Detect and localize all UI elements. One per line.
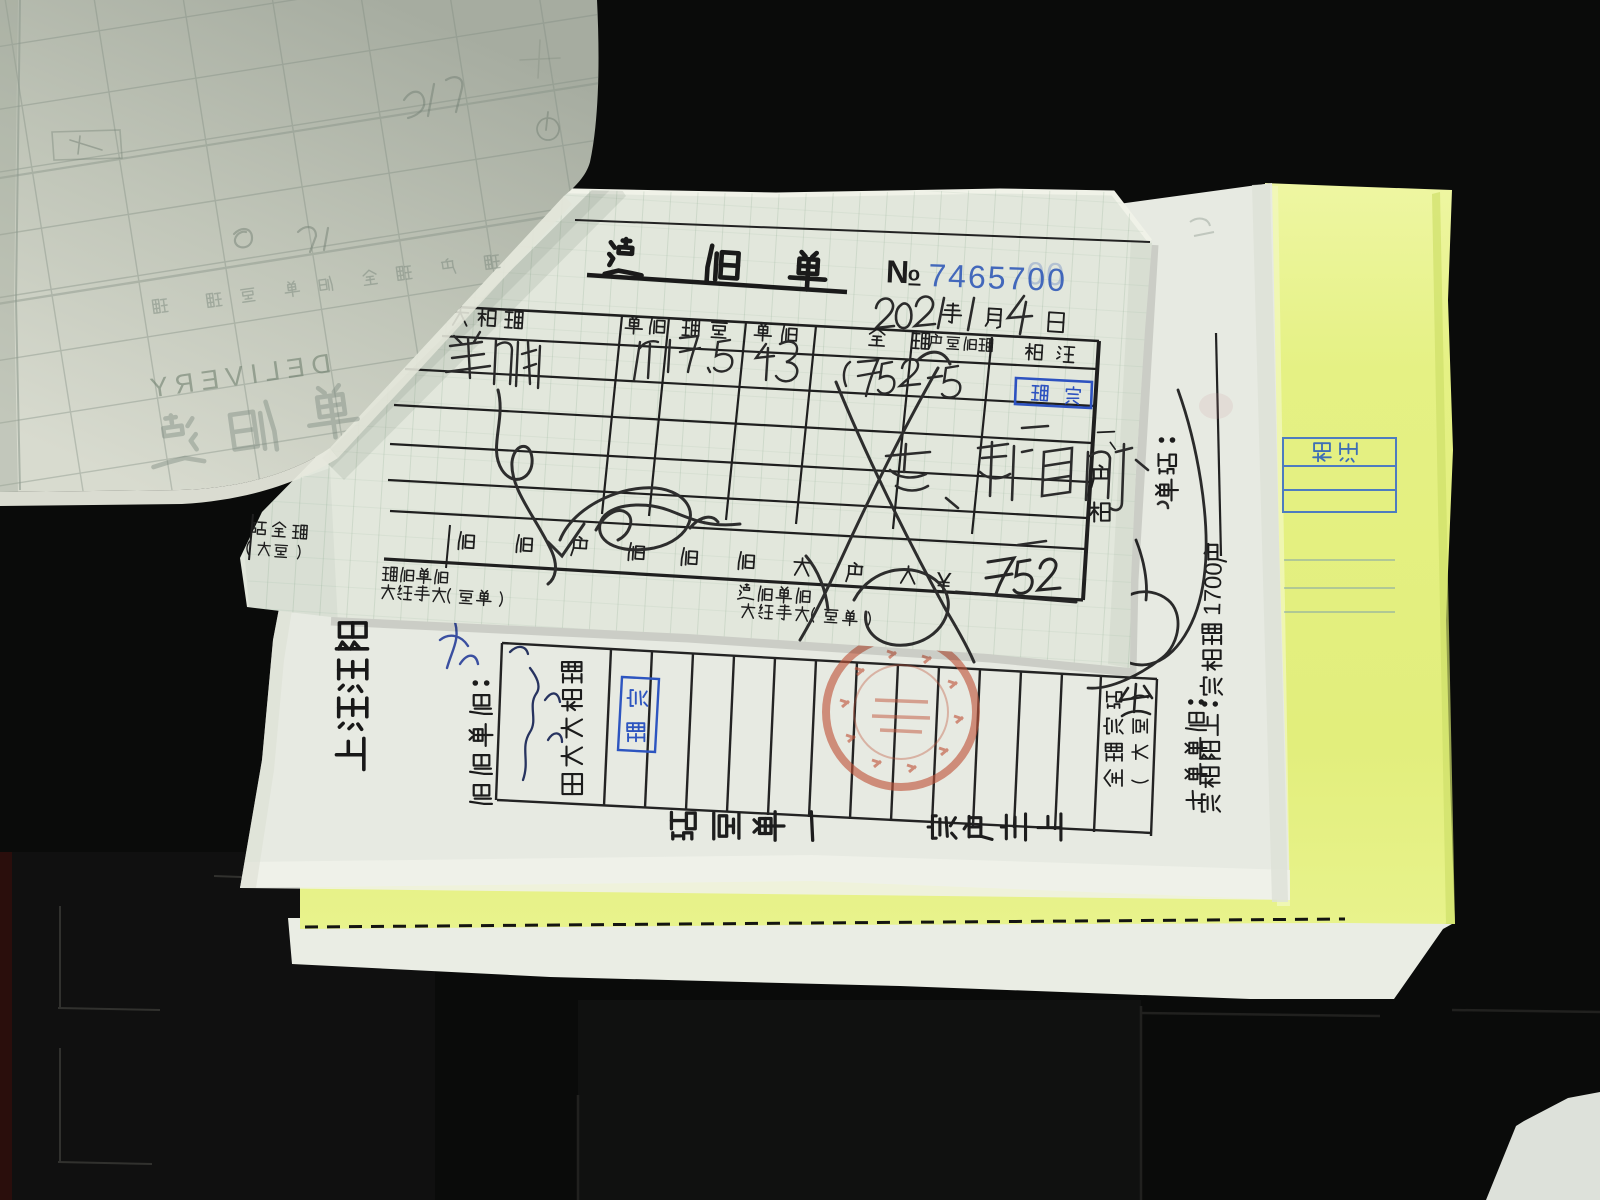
svg-text:N: N: [885, 253, 910, 290]
svg-text:o: o: [907, 263, 920, 286]
svg-text:00: 00: [1026, 255, 1067, 292]
